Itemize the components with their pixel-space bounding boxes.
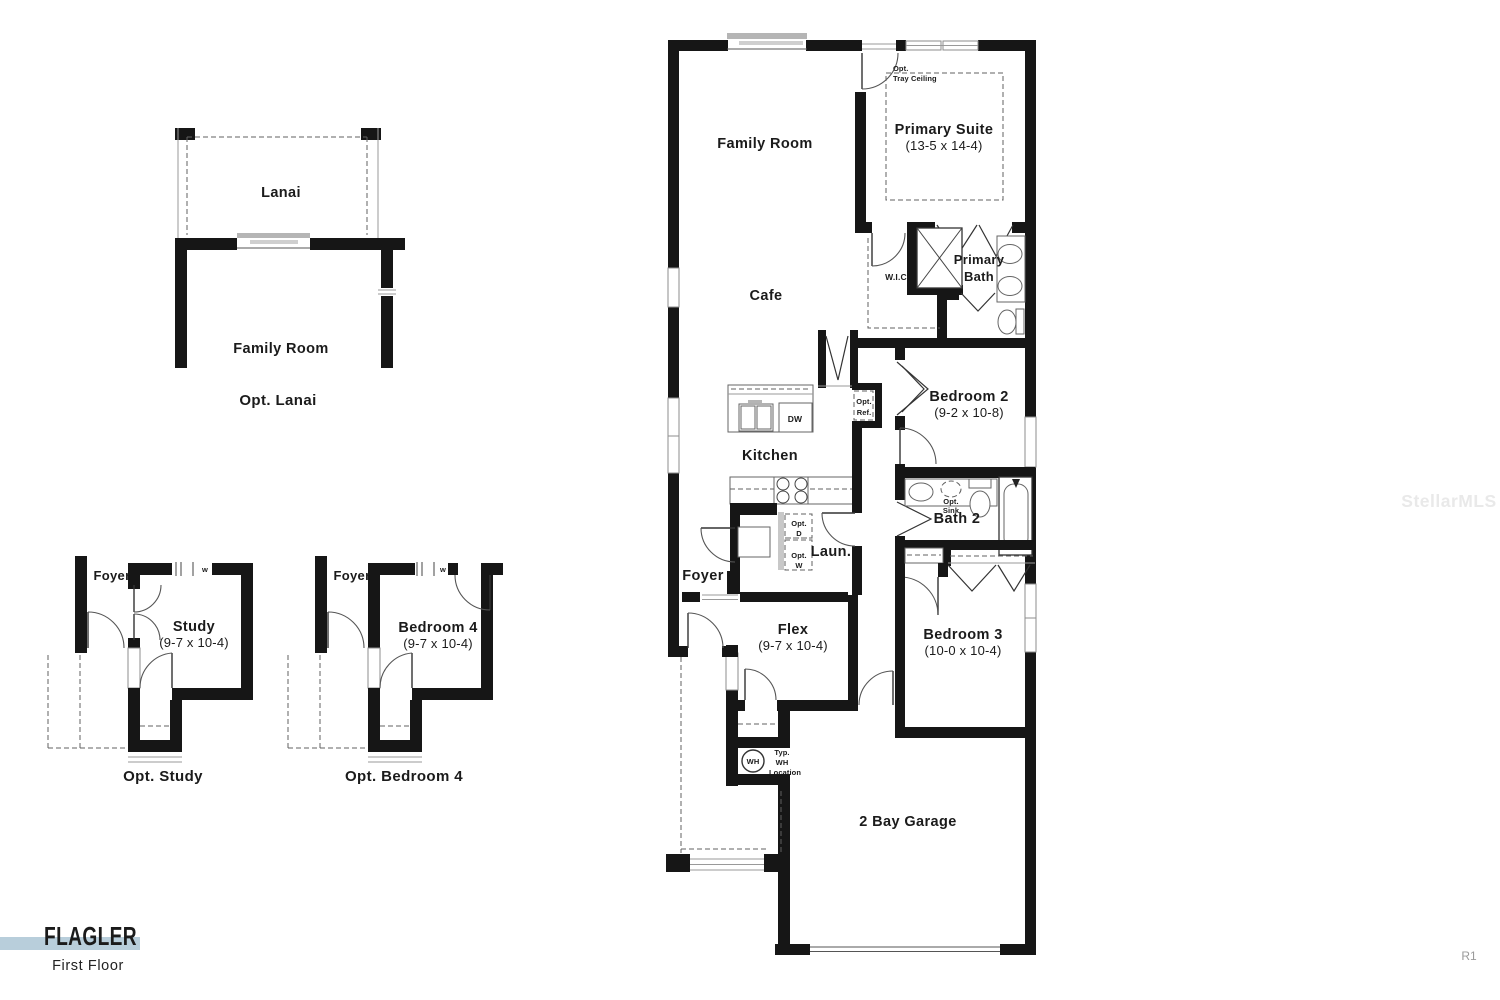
opt-bedroom4-detail: Foyer w Bedroom 4 (9-7 x 10-4) Opt. Bedr… bbox=[288, 556, 503, 785]
opt-study-walls bbox=[48, 556, 253, 762]
opt-bedroom4-room-dims: (9-7 x 10-4) bbox=[403, 636, 473, 651]
floor-plan-sheet: Lanai Family Room Opt. Lanai bbox=[0, 0, 1500, 1000]
primary-bath-label-1: Primary bbox=[954, 252, 1005, 267]
primary-bath: Primary Bath bbox=[917, 225, 1025, 334]
opt-sink-label-1: Opt. bbox=[943, 497, 958, 506]
pantry-door bbox=[826, 336, 848, 380]
opt-lanai-family-room-label: Family Room bbox=[233, 341, 328, 357]
title-block: FLAGLER First Floor bbox=[0, 921, 140, 974]
cafe-label: Cafe bbox=[749, 288, 782, 304]
bath-2: Opt. Sink Bath 2 bbox=[895, 477, 1035, 555]
garage: WH Typ. WH Location 2 Bay Garage bbox=[738, 671, 957, 830]
opt-study-foyer-label: Foyer bbox=[94, 568, 131, 583]
opt-bedroom4-caption: Opt. Bedroom 4 bbox=[345, 768, 463, 785]
hall-walls bbox=[848, 428, 862, 702]
watermark: StellarMLS bbox=[1401, 491, 1496, 511]
flex-room: Flex (9-7 x 10-4) bbox=[726, 622, 858, 711]
garage-entry-door bbox=[859, 671, 893, 705]
water-heater-label: WH bbox=[747, 757, 760, 766]
opt-d-label-1: Opt. bbox=[791, 519, 806, 528]
garage-label: 2 Bay Garage bbox=[859, 814, 957, 830]
water-closet-door bbox=[961, 293, 995, 311]
opt-ref-label-2: Ref. bbox=[857, 408, 872, 417]
opt-study-room-dims: (9-7 x 10-4) bbox=[159, 635, 229, 650]
opt-study-room-label: Study bbox=[173, 619, 215, 635]
foyer: Foyer bbox=[668, 515, 848, 657]
window bbox=[668, 268, 679, 307]
opt-study-caption: Opt. Study bbox=[123, 768, 203, 785]
laundry-door bbox=[822, 513, 855, 546]
bedroom2-dims: (9-2 x 10-8) bbox=[934, 405, 1004, 420]
tray-ceiling-label-2: Tray Ceiling bbox=[893, 74, 937, 83]
opt-ref-label-1: Opt. bbox=[856, 397, 871, 406]
foyer-closet bbox=[738, 527, 770, 557]
window bbox=[726, 653, 738, 690]
opt-lanai-walls bbox=[175, 128, 405, 368]
main-floor-plan: Opt. Tray Ceiling Primary Suite (13-5 x … bbox=[666, 33, 1036, 955]
primary-bath-label-2: Bath bbox=[964, 269, 994, 284]
bedroom-3: Bedroom 3 (10-0 x 10-4) bbox=[895, 540, 1035, 738]
revision-label: R1 bbox=[1461, 949, 1477, 963]
opt-bedroom4-foyer-label: Foyer bbox=[334, 568, 371, 583]
window bbox=[668, 398, 679, 436]
opt-w-label-2: W bbox=[795, 561, 803, 570]
opt-lanai-lanai-label: Lanai bbox=[261, 185, 301, 201]
sink bbox=[998, 277, 1022, 296]
window bbox=[1025, 417, 1036, 467]
bath2-label: Bath 2 bbox=[934, 511, 981, 527]
family-room-label: Family Room bbox=[717, 136, 812, 152]
window bbox=[1025, 584, 1036, 618]
flex-closet-door bbox=[745, 669, 776, 700]
wh-note-1: Typ. bbox=[774, 748, 789, 757]
laundry-label: Laun. bbox=[811, 544, 852, 560]
wh-note-2: WH bbox=[776, 758, 789, 767]
flex-label: Flex bbox=[778, 622, 809, 638]
floor-plan-canvas: Lanai Family Room Opt. Lanai bbox=[0, 0, 1500, 1000]
foyer-label: Foyer bbox=[682, 568, 724, 584]
flex-dims: (9-7 x 10-4) bbox=[758, 638, 828, 653]
bath2-door bbox=[897, 502, 931, 536]
primary-suite-dims: (13-5 x 14-4) bbox=[905, 138, 982, 153]
wic-door bbox=[872, 233, 905, 266]
floor-label: First Floor bbox=[52, 958, 124, 974]
bedroom3-door bbox=[900, 577, 938, 615]
laundry: Opt. D Opt. W Laun. bbox=[778, 512, 855, 570]
dishwasher-label: DW bbox=[788, 414, 803, 424]
bedroom3-closet-door bbox=[948, 565, 996, 591]
opt-lanai-detail: Lanai Family Room Opt. Lanai bbox=[175, 128, 405, 409]
front-door bbox=[688, 613, 723, 648]
bedroom3-dims: (10-0 x 10-4) bbox=[924, 643, 1001, 658]
opt-d-label-2: D bbox=[796, 529, 802, 538]
opt-study-washer-label: w bbox=[201, 565, 208, 574]
opt-bedroom4-room-label: Bedroom 4 bbox=[398, 620, 477, 636]
kitchen-label: Kitchen bbox=[742, 448, 798, 464]
sink bbox=[909, 483, 933, 501]
bedroom2-door bbox=[900, 428, 936, 464]
primary-suite-label: Primary Suite bbox=[895, 122, 994, 138]
opt-w-label-1: Opt. bbox=[791, 551, 806, 560]
window bbox=[668, 436, 679, 473]
foyer-closet-door bbox=[701, 528, 735, 562]
bedroom3-label: Bedroom 3 bbox=[923, 627, 1002, 643]
sliding-door bbox=[727, 33, 807, 39]
range bbox=[774, 477, 808, 504]
opt-lanai-caption: Opt. Lanai bbox=[239, 392, 316, 409]
bedroom-2: Bedroom 2 (9-2 x 10-8) bbox=[895, 348, 1035, 478]
bedroom2-label: Bedroom 2 bbox=[929, 389, 1008, 405]
plan-name: FLAGLER bbox=[44, 921, 137, 951]
wh-note-3: Location bbox=[769, 768, 801, 777]
window bbox=[1025, 618, 1036, 652]
primary-suite: Opt. Tray Ceiling Primary Suite (13-5 x … bbox=[862, 53, 1003, 200]
opt-study-detail: Foyer w Study (9-7 x 10-4) Opt. Study bbox=[48, 556, 253, 785]
tray-ceiling-label-1: Opt. bbox=[893, 64, 908, 73]
opt-bedroom4-washer-label: w bbox=[439, 565, 446, 574]
toilet bbox=[998, 310, 1016, 334]
wic-label: W.I.C bbox=[885, 272, 907, 282]
